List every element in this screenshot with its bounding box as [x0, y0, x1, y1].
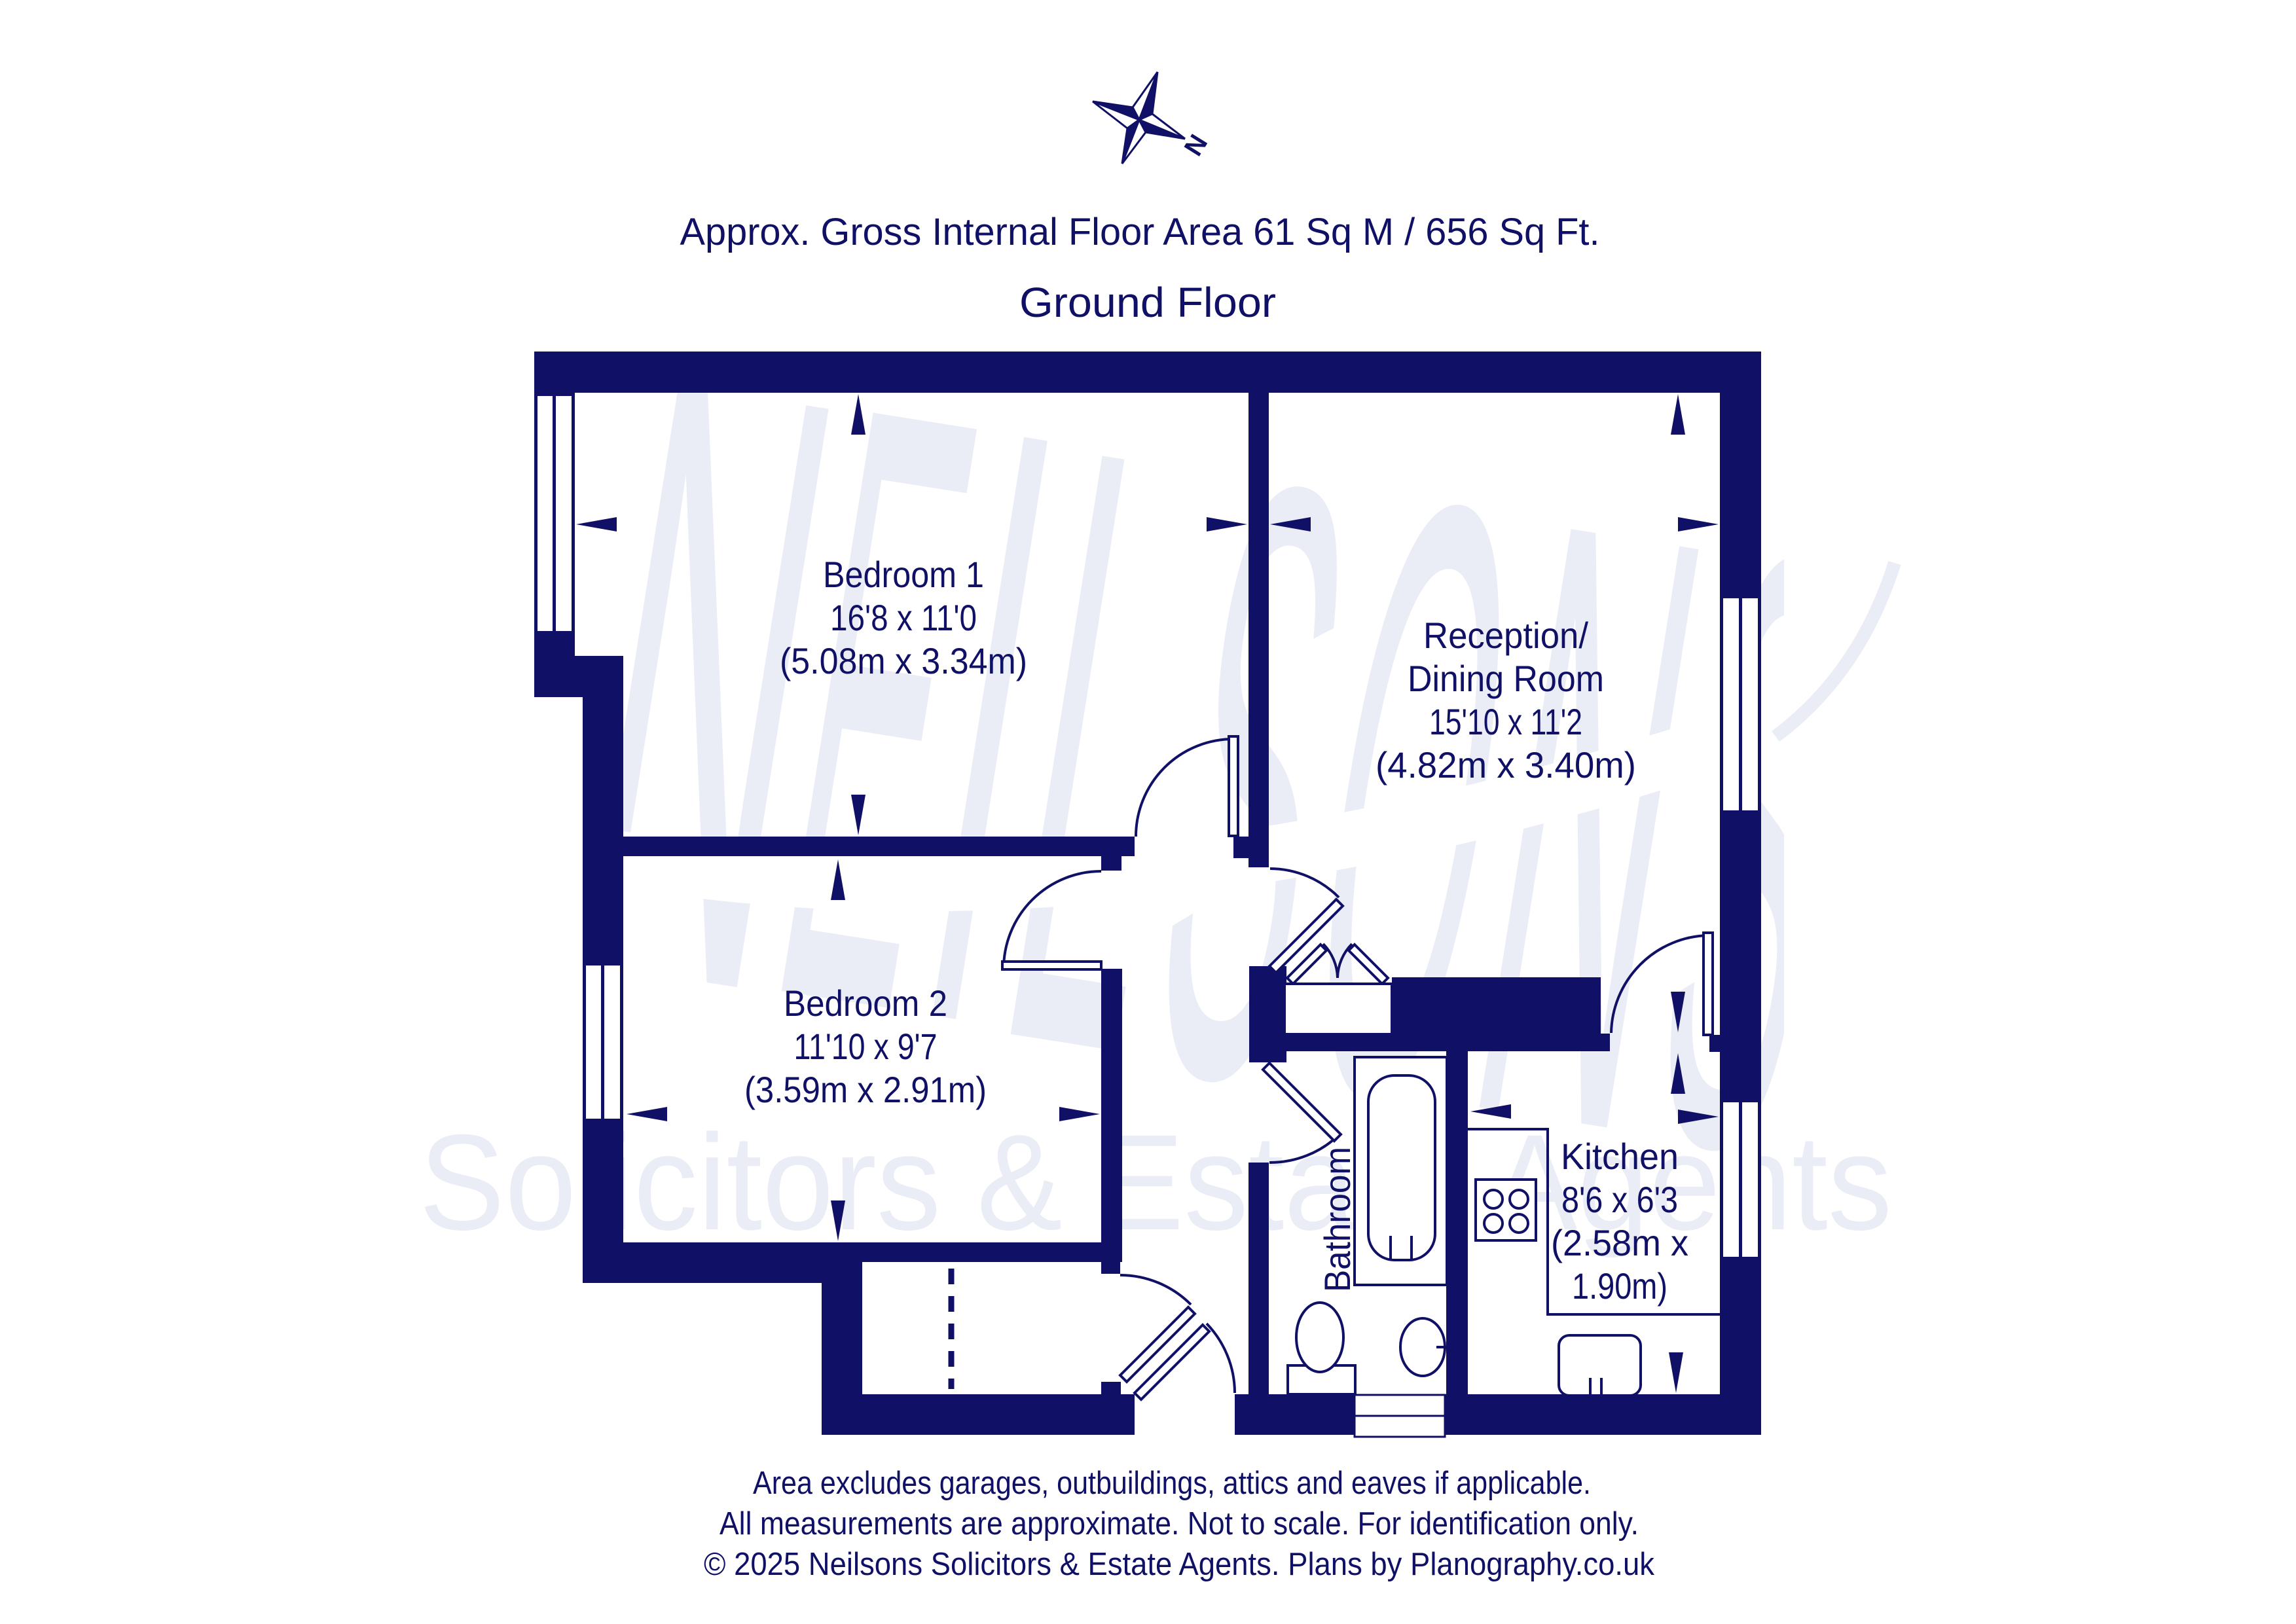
svg-text:All measurements are approxima: All measurements are approximate. Not to… [720, 1506, 1639, 1542]
svg-text:Ground Floor: Ground Floor [1019, 279, 1276, 326]
svg-text:1.90m): 1.90m) [1572, 1265, 1667, 1307]
svg-text:8'6 x 6'3: 8'6 x 6'3 [1561, 1179, 1678, 1220]
svg-text:(2.58m x: (2.58m x [1551, 1222, 1688, 1263]
svg-text:Bedroom 2: Bedroom 2 [784, 983, 947, 1024]
svg-text:Kitchen: Kitchen [1561, 1136, 1679, 1177]
svg-text:16'8 x 11'0: 16'8 x 11'0 [830, 597, 977, 638]
svg-text:Area excludes garages, outbuil: Area excludes garages, outbuildings, att… [753, 1466, 1591, 1501]
svg-text:(4.82m x 3.40m): (4.82m x 3.40m) [1376, 744, 1636, 785]
svg-text:Bedroom 1: Bedroom 1 [823, 554, 984, 595]
svg-text:Dining Room: Dining Room [1408, 658, 1604, 699]
svg-text:11'10 x 9'7: 11'10 x 9'7 [794, 1026, 938, 1067]
svg-text:Reception/: Reception/ [1423, 615, 1588, 656]
svg-text:(5.08m x 3.34m): (5.08m x 3.34m) [780, 640, 1027, 681]
svg-text:15'10 x 11'2: 15'10 x 11'2 [1429, 701, 1582, 742]
svg-text:Approx. Gross Internal Floor A: Approx. Gross Internal Floor Area 61 Sq … [680, 211, 1600, 253]
svg-text:Bathroom: Bathroom [1317, 1147, 1358, 1292]
svg-text:© 2025 Neilsons Solicitors & E: © 2025 Neilsons Solicitors & Estate Agen… [704, 1547, 1654, 1582]
svg-text:(3.59m x 2.91m): (3.59m x 2.91m) [744, 1069, 987, 1110]
